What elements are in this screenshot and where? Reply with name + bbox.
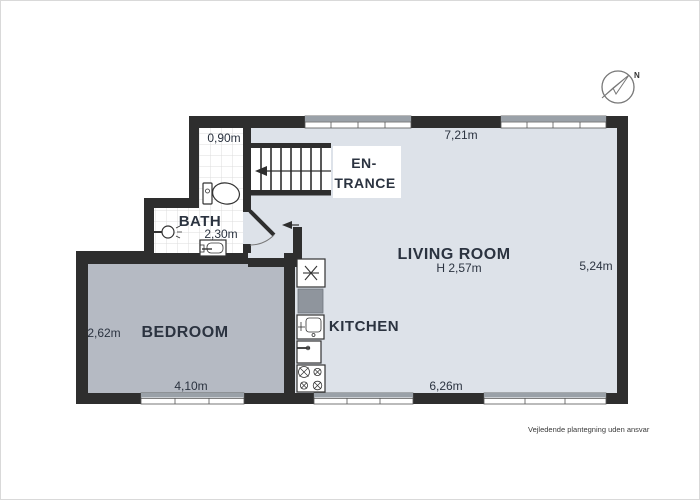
entrance-label-line2: TRANCE bbox=[334, 175, 395, 191]
kitchen-sink-icon bbox=[297, 315, 324, 339]
washbasin-icon bbox=[200, 240, 226, 256]
bath-size-measurement: 2,30m bbox=[204, 227, 237, 241]
window-bottom-3 bbox=[484, 393, 606, 404]
disclaimer-text: Vejledende plantegning uden ansvar bbox=[528, 425, 650, 434]
floor-plan-page: EN- TRANCE 0,90m BATH 2,30m 7,21m LIVING… bbox=[0, 0, 700, 500]
north-arrow bbox=[602, 75, 629, 98]
bath-width-measurement: 0,90m bbox=[207, 131, 240, 145]
window-top-2 bbox=[501, 116, 606, 128]
living-room-bottom-width-measurement: 6,26m bbox=[429, 379, 462, 393]
stove-icon bbox=[297, 365, 325, 392]
window-bottom-2 bbox=[314, 393, 413, 404]
dishwasher-icon bbox=[297, 341, 321, 363]
countertop bbox=[298, 289, 323, 313]
living-room-top-width-measurement: 7,21m bbox=[444, 128, 477, 142]
floor-plan-drawing: EN- TRANCE 0,90m BATH 2,30m 7,21m LIVING… bbox=[1, 1, 700, 500]
refrigerator-icon bbox=[297, 259, 325, 287]
bedroom-width-measurement: 4,10m bbox=[174, 379, 207, 393]
staircase bbox=[243, 143, 331, 196]
living-room-right-depth-measurement: 5,24m bbox=[579, 259, 612, 273]
kitchen-label: KITCHEN bbox=[329, 318, 399, 335]
bedroom-label: BEDROOM bbox=[141, 324, 228, 341]
compass-north-label: N bbox=[634, 71, 640, 80]
window-top-1 bbox=[305, 116, 411, 128]
living-room-ceiling-height: H 2,57m bbox=[436, 261, 481, 275]
bedroom-depth-measurement: 2,62m bbox=[87, 326, 120, 340]
window-bottom-1 bbox=[141, 393, 244, 404]
compass-icon: N bbox=[602, 71, 640, 103]
entrance-label-line1: EN- bbox=[351, 155, 377, 171]
